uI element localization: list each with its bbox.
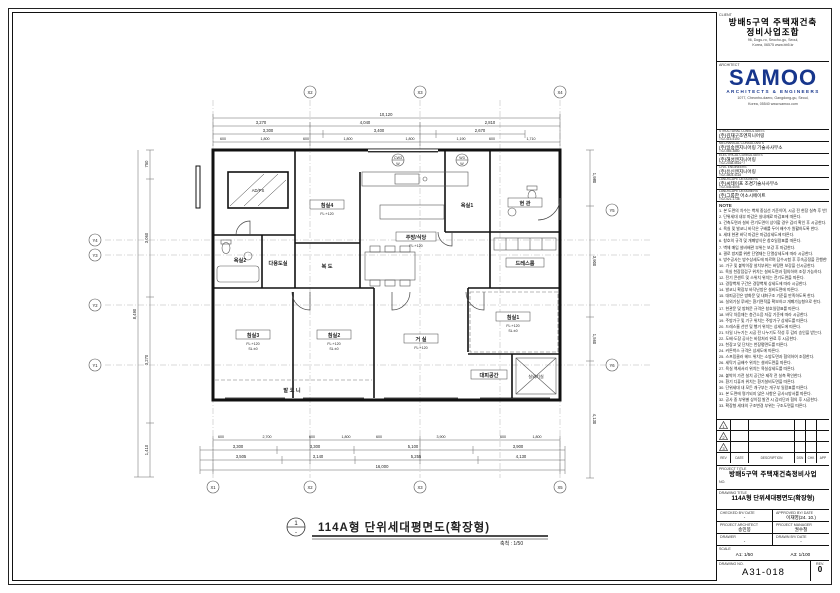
scale-block: SCALE A1: 1/50 A3: 1/100: [717, 546, 829, 561]
drawing-no-label: DRAWING NO.: [717, 561, 810, 566]
client-block: CLIENT 방배5구역 주택재건축 정비사업조합 96, Dogu-ro, S…: [717, 12, 829, 62]
grid-label: Y3: [92, 253, 98, 258]
dim-label: 3,270: [144, 354, 149, 365]
level-note: FL:+120: [414, 346, 427, 350]
rev-col-header: APP: [817, 453, 829, 463]
level-note: SL:±0: [329, 347, 338, 351]
rev-col-header: DESCRIPTION: [749, 453, 795, 463]
room-label-bath1: 욕실1: [461, 201, 474, 209]
grid-bubbles-bottom: [207, 481, 566, 493]
consultant-item: LANDSCAPE DESIGNERS (주)그룹한 어소시에이트 T:02-5…: [717, 190, 829, 201]
note-line: 8. 결로 방지를 위한 단열재는 단열상세도에 따라 시공한다.: [719, 251, 827, 257]
notes-block: NOTE 1. 본 도면의 치수는 벽체 중심선 기준이며, 시공 전 현장 실…: [717, 202, 829, 420]
room-label-living: 거 실: [416, 335, 427, 343]
grid-label: X3: [417, 90, 423, 95]
dim-label: 600: [220, 137, 226, 141]
grid-bubbles-top: [304, 86, 566, 98]
grid-label: Y1: [92, 363, 98, 368]
note-line: 9. 방수공사는 방수상세도에 따르며 담수시험 후 후속공정을 진행한다.: [719, 257, 827, 263]
kitchen-counter: [362, 172, 468, 219]
level-note: FL:+120: [320, 212, 333, 216]
drawing-no-value: A31-018: [717, 567, 810, 578]
revision-triangle-icon: 3: [719, 443, 728, 451]
grid-label: Y4: [92, 238, 98, 243]
dim-label: 600: [489, 137, 495, 141]
rev-col-header: REV: [717, 453, 731, 463]
note-line: 31. 본 도면에 명기되지 않은 사항은 공사시방서를 따른다.: [719, 391, 827, 397]
plan-title-text: 114A형 단위세대평면도(확장형): [318, 520, 490, 534]
approved-value: 이재영(24. 10.): [774, 515, 828, 520]
floor-plan-canvas: X2 X3 X4 X1 X2 X3 X5 Y4 Y3 Y2 Y1 Y5 Y6: [0, 0, 716, 593]
dim-label: 600: [303, 137, 309, 141]
project-title-text: 방배5구역 주택재건축정비사업: [717, 471, 829, 479]
dim-label: 2,810: [485, 120, 496, 125]
room-label-hall: 복 도: [322, 263, 333, 270]
grid-label: X1: [210, 485, 216, 490]
dim-label: 3,300: [263, 128, 274, 133]
dim-label: 1,710: [527, 137, 536, 141]
room-label-util: 다용도실: [268, 259, 287, 267]
grid-label: Y6: [609, 363, 615, 368]
title-bubble-dash: -: [295, 530, 297, 536]
dim-label: 4,130: [516, 454, 527, 459]
grid-bubbles-right: [606, 204, 618, 371]
dim-label: 3,900: [437, 435, 446, 439]
level-note: FL:+120: [506, 324, 519, 328]
samoo-tagline: ARCHITECTS & ENGINEERS: [717, 89, 829, 94]
dim-label: 3,400: [374, 128, 385, 133]
client-address: 96, Dogu-ro, Seocho-gu, Seoul,: [717, 38, 829, 42]
rev-col-header: DSN: [795, 453, 806, 463]
grid-label: X2: [307, 485, 313, 490]
window-tag-label: CW3: [394, 156, 402, 160]
dim-label: 8,490: [132, 308, 137, 319]
revision-block: 1 2 3 REV DATE DESCRIPTION DSN CHK APP: [717, 420, 829, 466]
title-block: CLIENT 방배5구역 주택재건축 정비사업조합 96, Dogu-ro, S…: [716, 12, 828, 581]
grid-label: Y5: [609, 208, 615, 213]
dim-label: 1,980: [592, 173, 597, 184]
dim-label: 1,800: [533, 435, 542, 439]
revision-header-row: REV DATE DESCRIPTION DSN CHK APP: [717, 453, 829, 463]
client-name-line2: 정비사업조합: [717, 27, 829, 37]
dimension-lines-left: [134, 150, 154, 477]
room-label-entry: 현 관: [520, 199, 531, 207]
room-label-evac: 대피공간: [479, 371, 498, 379]
client-address2: Korea, 06575 www.bb5.kr: [717, 43, 829, 47]
grid-label: X5: [557, 485, 563, 490]
grid-lines: [105, 100, 650, 478]
revision-row: 3: [717, 442, 829, 453]
plan-scale-note: 축척 : 1/50: [500, 540, 523, 547]
room-label-bed3: 침실3: [247, 331, 260, 339]
revision-row: 1: [717, 420, 829, 431]
dim-label: 16,000: [376, 464, 389, 469]
exterior-walls: [196, 150, 560, 400]
architect-address: 1077, Cheonho-daero, Gangdong-gu, Seoul,: [717, 96, 829, 100]
dim-label: 600: [376, 435, 382, 439]
samoo-logo: SAMOO: [717, 67, 829, 89]
grid-label: Y2: [92, 303, 98, 308]
doors: [236, 198, 560, 310]
room-label-bed1: 침실1: [507, 313, 520, 321]
rev-value: 0: [811, 566, 829, 574]
level-note: FL:+120: [409, 244, 422, 248]
dimension-lines-right: [586, 150, 594, 478]
dim-label: 3,060: [144, 232, 149, 243]
scale-a1: A1: 1/50: [736, 552, 753, 557]
dim-label: 10,120: [380, 112, 393, 117]
project-manager-value: 권수철: [774, 527, 828, 532]
interior-walls: [213, 150, 560, 398]
rev-col-header: CHK: [806, 453, 817, 463]
window-tag-label: W: [460, 162, 464, 166]
consultants-block: STRUCTURAL CONSULTANTS (주)김재구조엔지니어링 T:02…: [717, 130, 829, 202]
scale-label: SCALE: [717, 546, 829, 551]
room-label-balcony: 발 코 니: [283, 386, 300, 394]
level-note: FL:+120: [246, 342, 259, 346]
drawer-value: -: [718, 539, 771, 544]
dim-label: 1,800: [406, 137, 415, 141]
revision-row: 2: [717, 431, 829, 442]
dim-label: 3,300: [233, 444, 244, 449]
dim-label: 750: [144, 160, 149, 168]
architect-block: ARCHITECT SAMOO ARCHITECTS & ENGINEERS 1…: [717, 62, 829, 130]
dim-label: 5,255: [411, 454, 422, 459]
dim-label: 3,505: [236, 454, 247, 459]
grid-label: X3: [417, 485, 423, 490]
dim-label: 4,130: [592, 414, 597, 425]
dim-label: 1,560: [592, 334, 597, 345]
dim-label: 5,100: [408, 444, 419, 449]
room-label-bath2: 욕실2: [234, 256, 247, 264]
dim-label: 2,670: [475, 128, 486, 133]
dim-label: 4,040: [360, 120, 371, 125]
grid-label: X2: [307, 90, 313, 95]
dim-label: 600: [309, 435, 315, 439]
note-line: 16. 실외기실 루버는 환기면적을 확보하고 개폐가능형으로 한다.: [719, 299, 827, 305]
grid-label: X4: [557, 90, 563, 95]
room-label-core: AD/PS: [252, 188, 265, 193]
room-label-kitchen: 주방/식당: [406, 233, 427, 241]
dim-label: 1,410: [144, 444, 149, 455]
dim-label: 1,190: [457, 137, 466, 141]
drawing-sheet: X2 X3 X4 X1 X2 X3 X5 Y4 Y3 Y2 Y1 Y5 Y6: [0, 0, 840, 593]
title-underline: [312, 536, 548, 539]
windows: [225, 149, 550, 401]
dim-label: 3,900: [592, 256, 597, 267]
window-tag: [392, 154, 468, 166]
dim-label: 2,700: [263, 435, 272, 439]
scale-a3: A3: 1/100: [791, 552, 811, 557]
drawn-value: -: [774, 539, 828, 544]
project-title-block: PROJECT TITLE 방배5구역 주택재건축정비사업 NO.: [717, 466, 829, 490]
dim-label: 1,800: [261, 137, 270, 141]
drawing-title-text: 114A형 단위세대평면도(확장형): [717, 495, 829, 503]
dim-label: 1,800: [342, 435, 351, 439]
window-tag-label: W3: [459, 156, 464, 160]
dim-label: 3,270: [256, 120, 267, 125]
client-name-line1: 방배5구역 주택재건축: [717, 17, 829, 27]
dim-label: 600: [500, 435, 506, 439]
revision-triangle-icon: 2: [719, 432, 728, 440]
revision-triangle-icon: 1: [719, 421, 728, 429]
level-note: SL:±0: [508, 329, 517, 333]
note-line: 33. 확장형 세대의 구조변경 부위는 구조도면을 따른다.: [719, 403, 827, 409]
dining-table: [365, 246, 415, 286]
project-architect-value: 송민봉: [718, 527, 771, 532]
room-label-bed2: 침실2: [328, 331, 341, 339]
drawing-number-block: DRAWING NO. A31-018 REV. 0: [717, 561, 829, 581]
dim-label: 3,900: [513, 444, 524, 449]
level-note: FL:+120: [327, 342, 340, 346]
room-label-bed4: 침실4: [321, 201, 334, 209]
room-label-dress: 드레스룸: [515, 259, 534, 267]
dim-label: 600: [218, 435, 224, 439]
dim-label: 3,300: [310, 444, 321, 449]
checked-value: -: [718, 515, 771, 520]
window-tag-label: W: [396, 162, 400, 166]
architect-address2: Korea, 05540 www.samoo.com: [717, 102, 829, 106]
level-note: SL:±0: [248, 347, 257, 351]
dim-label: 3,140: [313, 454, 324, 459]
signoff-block: CHECKED BY/ DATE- APPROVED BY/ DATE이재영(2…: [717, 510, 829, 546]
rev-col-header: DATE: [731, 453, 749, 463]
project-no-label: NO.: [717, 479, 829, 484]
notes-list: 1. 본 도면의 치수는 벽체 중심선 기준이며, 시공 전 현장 실측 후 반…: [717, 208, 829, 409]
dim-label: 1,800: [344, 137, 353, 141]
drawing-title-block: DRAWING TITLE 114A형 단위세대평면도(확장형): [717, 490, 829, 510]
room-label-acunit: 실외기실: [528, 373, 544, 380]
